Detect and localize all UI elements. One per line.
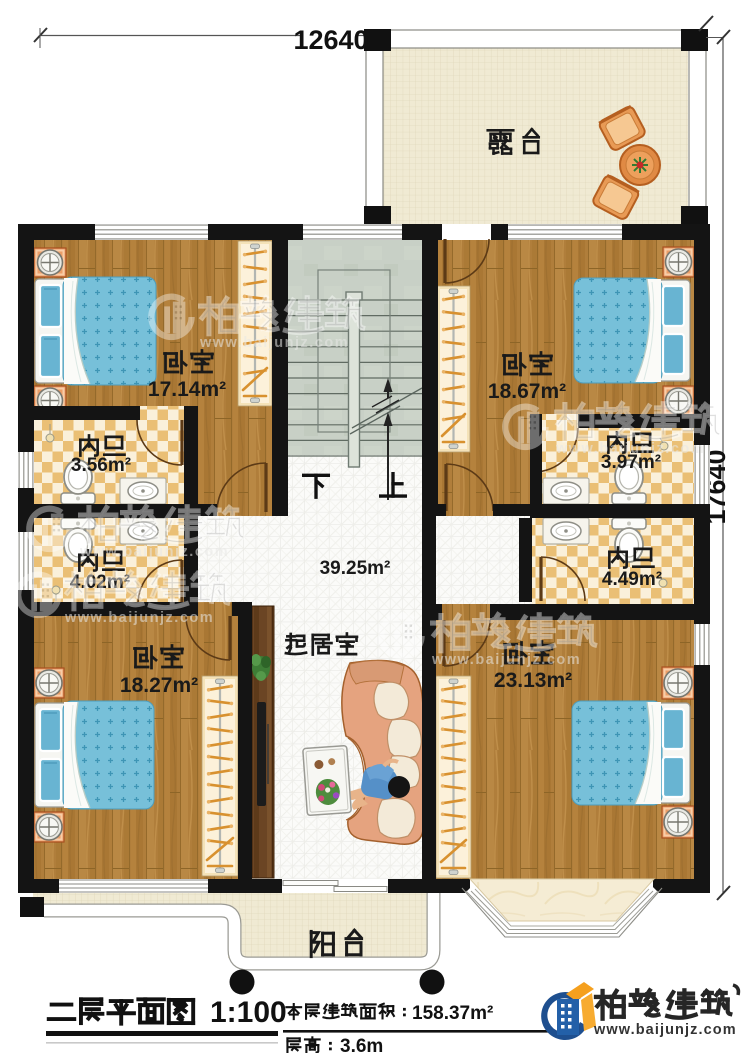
svg-text:1:100: 1:100 (210, 996, 287, 1029)
svg-text:www.baijunjz.com: www.baijunjz.com (431, 652, 581, 668)
svg-text:www.baijunjz.com: www.baijunjz.com (64, 610, 214, 626)
svg-text:23.13m²: 23.13m² (494, 669, 572, 692)
svg-text:www.baijunjz.com: www.baijunjz.com (199, 335, 349, 351)
svg-text:www.baijunjz.com: www.baijunjz.com (555, 441, 705, 457)
svg-text:www.baijunjz.com: www.baijunjz.com (79, 544, 229, 560)
svg-text:17.14m²: 17.14m² (148, 378, 226, 401)
svg-text:18.27m²: 18.27m² (120, 674, 198, 697)
svg-text:www.baijunjz.com: www.baijunjz.com (593, 1022, 737, 1038)
svg-text:39.25m²: 39.25m² (320, 558, 391, 579)
svg-text:3.56m²: 3.56m² (71, 455, 131, 476)
svg-text:12640: 12640 (293, 25, 368, 55)
svg-text:3.6m: 3.6m (340, 1036, 383, 1053)
svg-text:4.49m²: 4.49m² (602, 569, 662, 590)
svg-text:158.37m²: 158.37m² (412, 1003, 493, 1024)
svg-text:18.67m²: 18.67m² (488, 380, 566, 403)
